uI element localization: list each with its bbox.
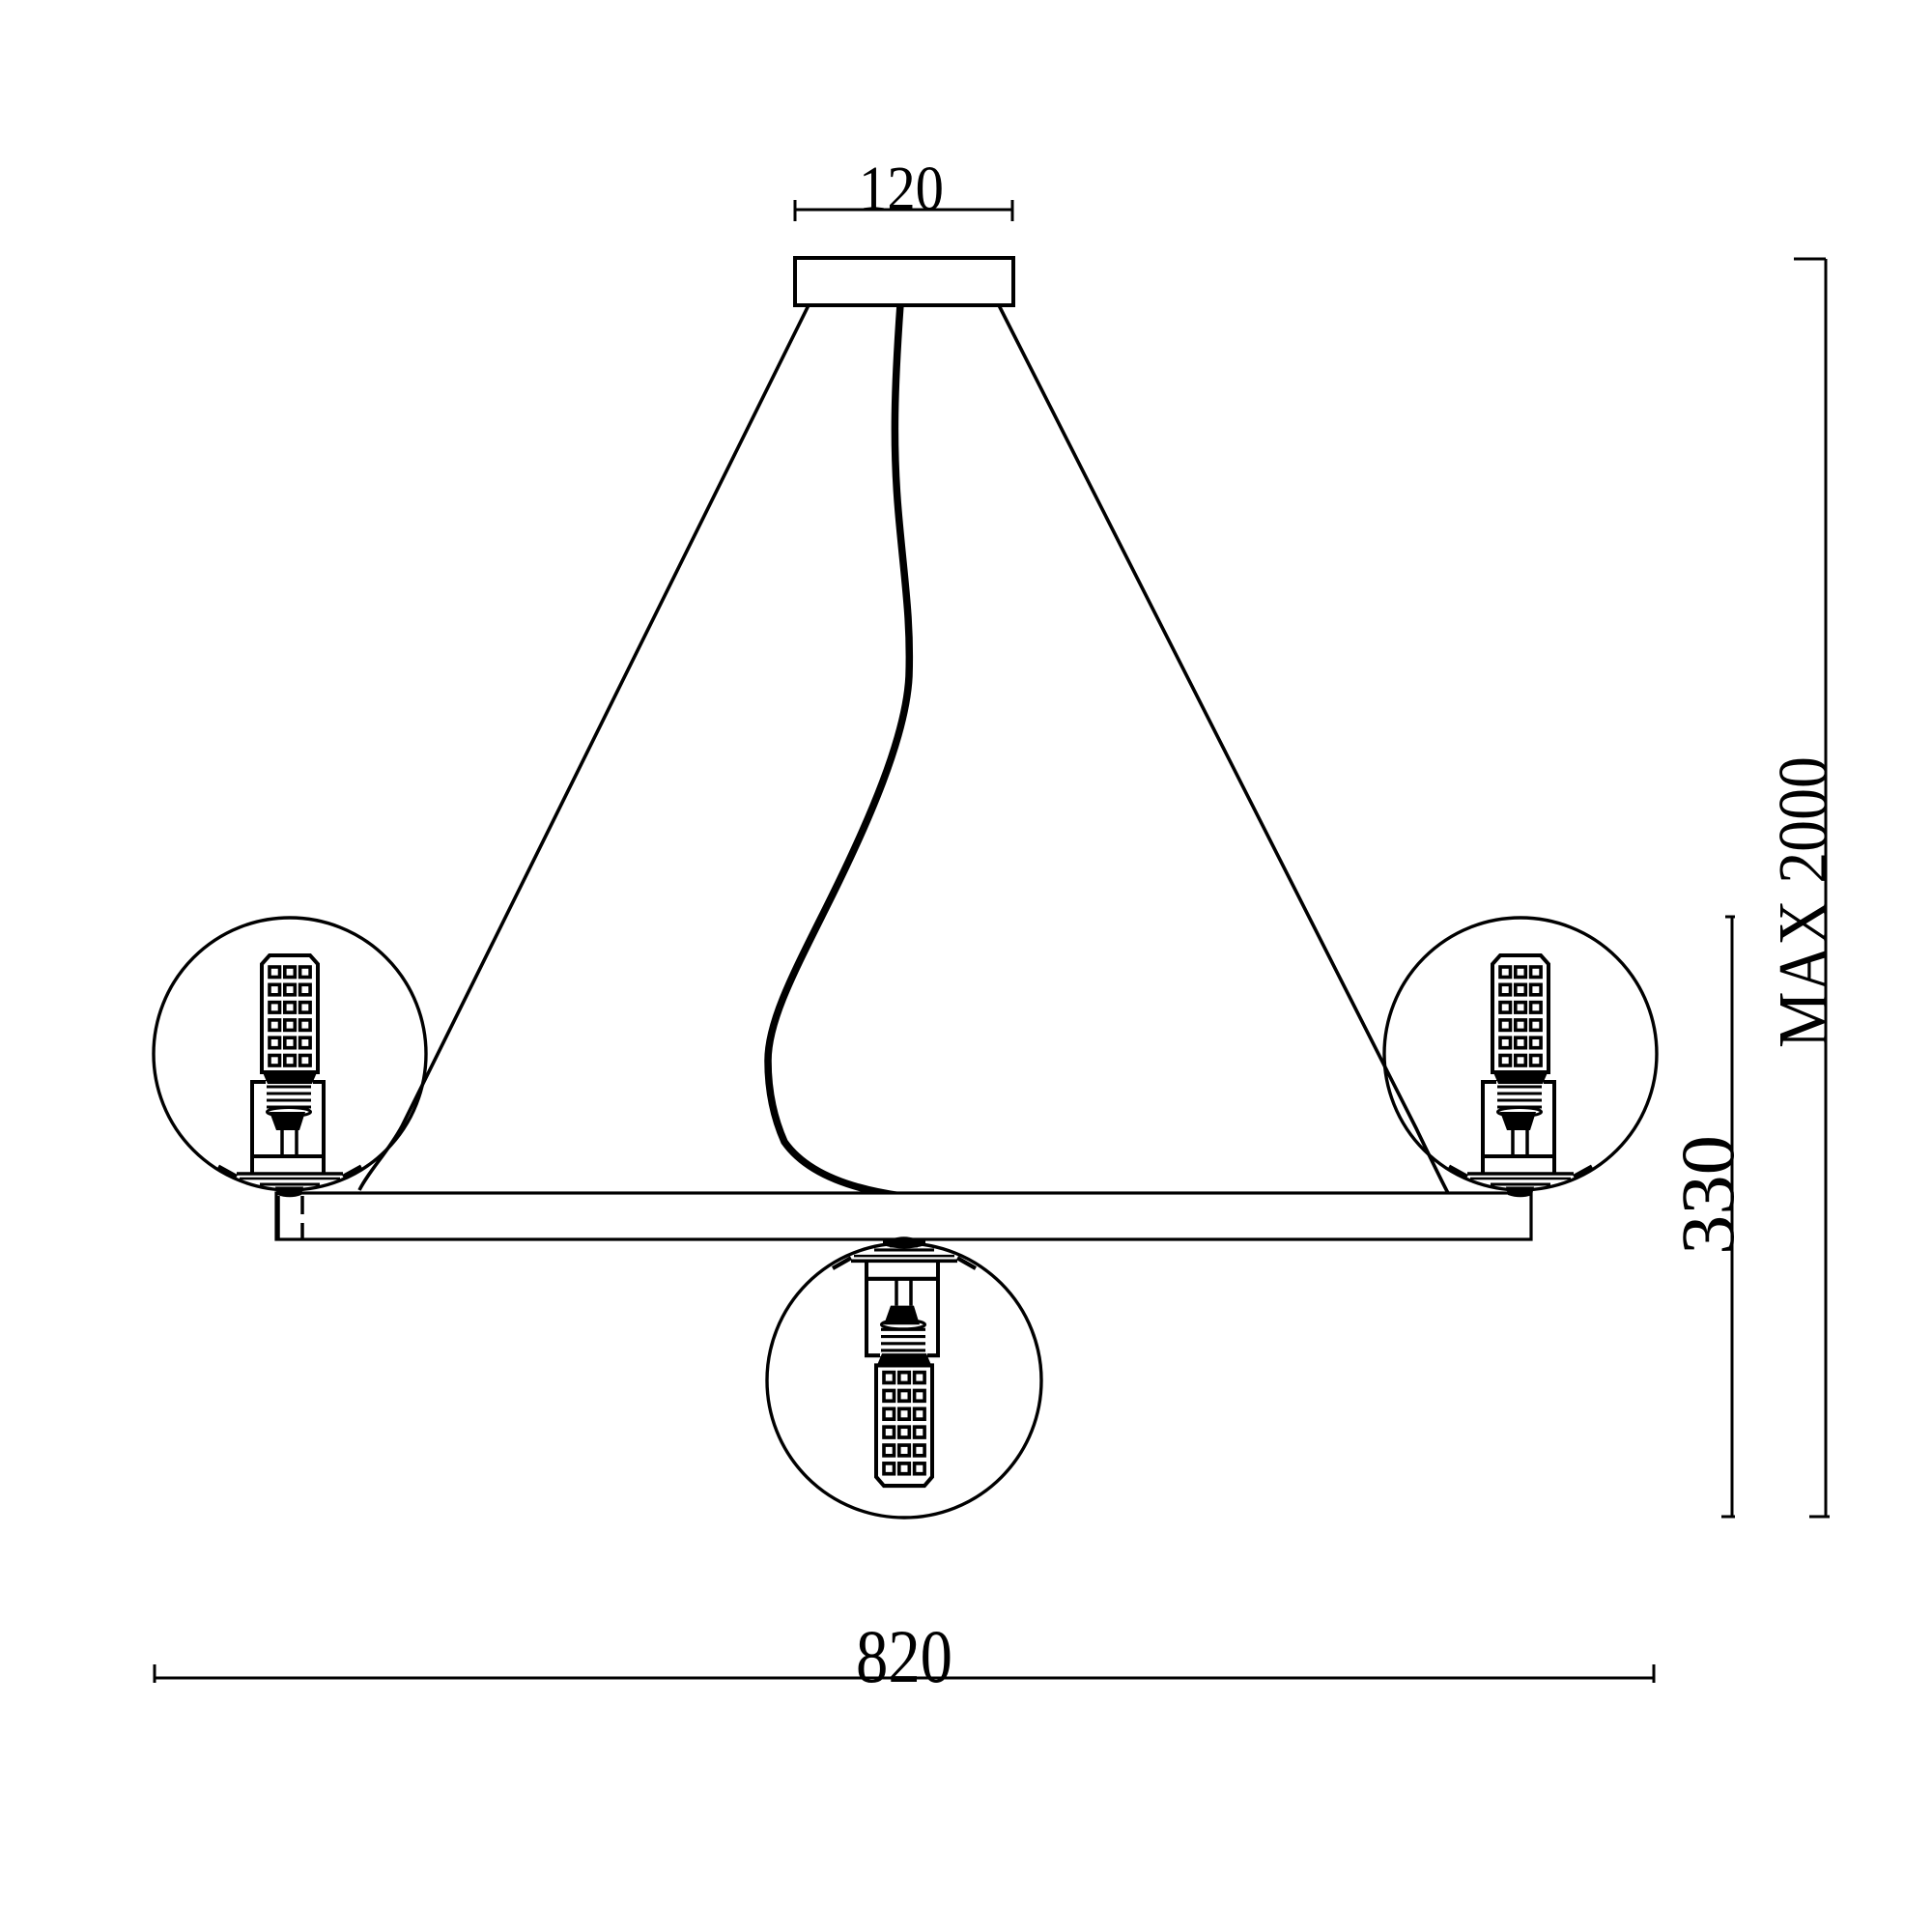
svg-text:120: 120 — [859, 154, 944, 224]
svg-text:330: 330 — [1665, 1135, 1749, 1255]
svg-text:820: 820 — [856, 1614, 952, 1698]
svg-text:MAX 2000: MAX 2000 — [1764, 756, 1842, 1048]
